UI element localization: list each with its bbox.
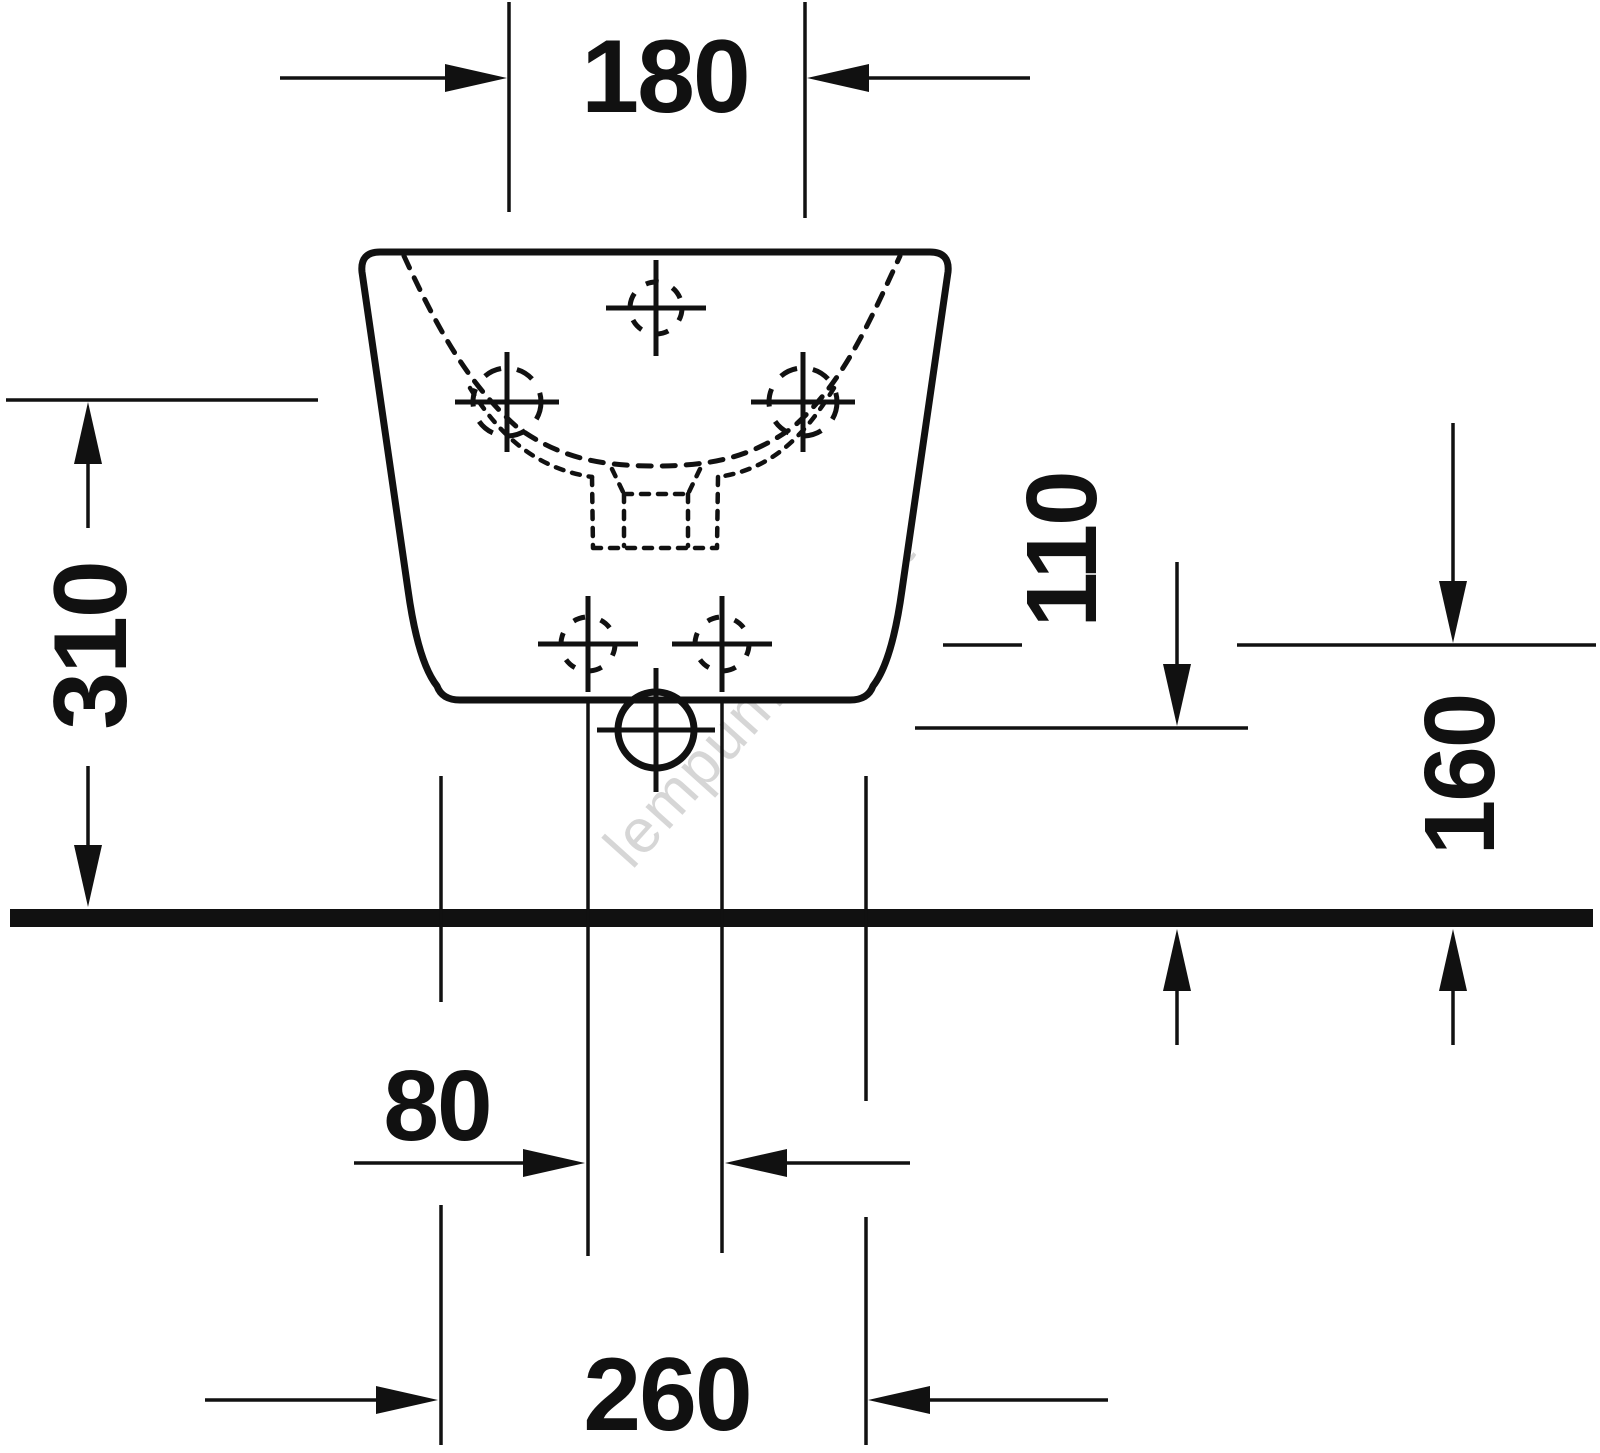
dimension-180-label: 180 [581, 19, 749, 135]
arrowhead-left-icon [868, 1386, 930, 1414]
arrowhead-down-icon [1163, 664, 1191, 726]
dimension-310-label: 310 [33, 562, 149, 730]
dimension-110-label: 110 [1006, 472, 1118, 627]
arrowhead-right-icon [376, 1386, 438, 1414]
bidet-dimension-drawing: lempumanija.lt [0, 0, 1600, 1453]
ground-reference-arrows [1163, 929, 1467, 1045]
arrowhead-left-icon [725, 1149, 787, 1177]
arrowhead-left-icon [807, 64, 869, 92]
dimension-80: 80 [354, 1050, 910, 1177]
technical-drawing-canvas: lempumanija.lt [0, 0, 1600, 1453]
arrowhead-down-icon [1439, 581, 1467, 643]
dimension-310: 310 [6, 400, 318, 907]
dimension-80-label: 80 [383, 1050, 490, 1162]
arrowhead-up-icon [1163, 929, 1191, 991]
arrowhead-right-icon [445, 64, 507, 92]
dimension-260: 260 [205, 1337, 1108, 1453]
dimension-110: 110 [915, 472, 1248, 728]
arrowhead-up-icon [1439, 929, 1467, 991]
arrowhead-right-icon [523, 1149, 585, 1177]
dimension-260-label: 260 [583, 1337, 751, 1453]
dimension-180: 180 [280, 2, 1030, 218]
dimension-160: 160 [1237, 423, 1596, 855]
arrowhead-up-icon [74, 402, 102, 464]
ground-line [10, 909, 1593, 927]
dimension-160-label: 160 [1404, 695, 1516, 856]
arrowhead-down-icon [74, 845, 102, 907]
